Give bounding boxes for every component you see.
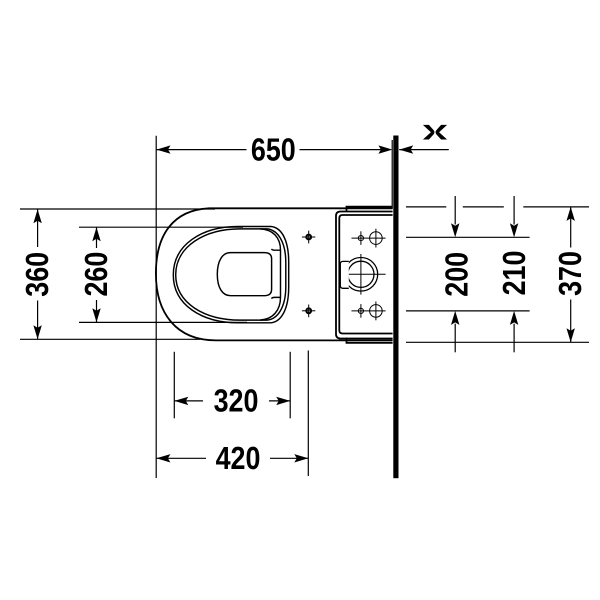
svg-text:370: 370 [552, 251, 588, 296]
svg-text:200: 200 [438, 252, 474, 297]
svg-text:650: 650 [251, 132, 296, 168]
svg-text:360: 360 [19, 252, 55, 297]
svg-text:260: 260 [78, 252, 114, 297]
svg-text:210: 210 [496, 251, 532, 296]
svg-text:320: 320 [214, 383, 259, 419]
svg-text:420: 420 [216, 440, 261, 476]
